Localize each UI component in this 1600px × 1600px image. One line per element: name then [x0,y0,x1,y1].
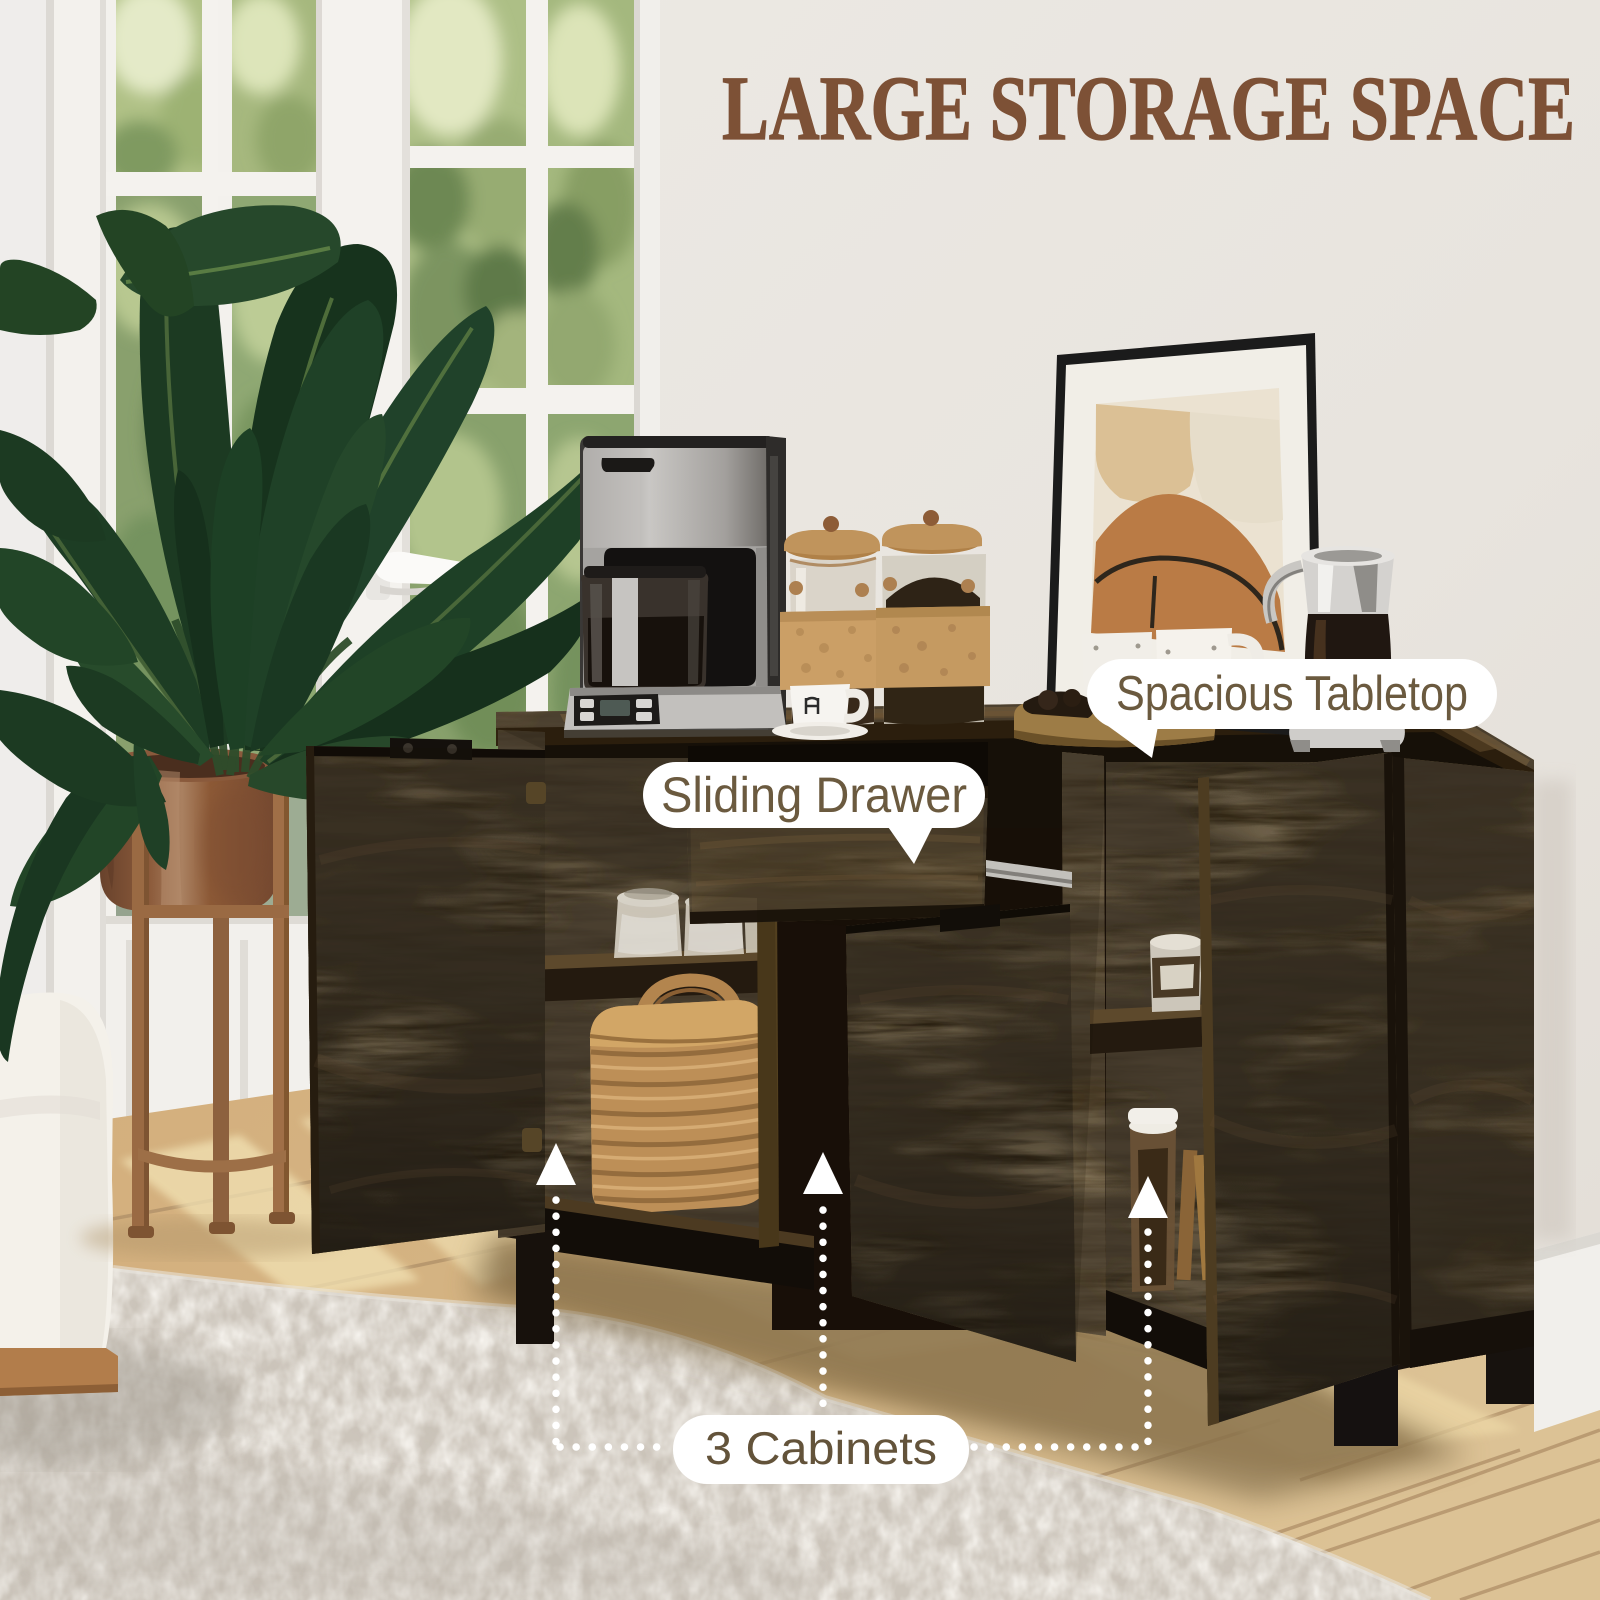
svg-text:3 Cabinets: 3 Cabinets [705,1422,937,1474]
svg-text:LARGE STORAGE SPACE: LARGE STORAGE SPACE [722,57,1575,159]
svg-text:Spacious Tabletop: Spacious Tabletop [1116,667,1468,721]
svg-text:Sliding Drawer: Sliding Drawer [661,767,967,823]
